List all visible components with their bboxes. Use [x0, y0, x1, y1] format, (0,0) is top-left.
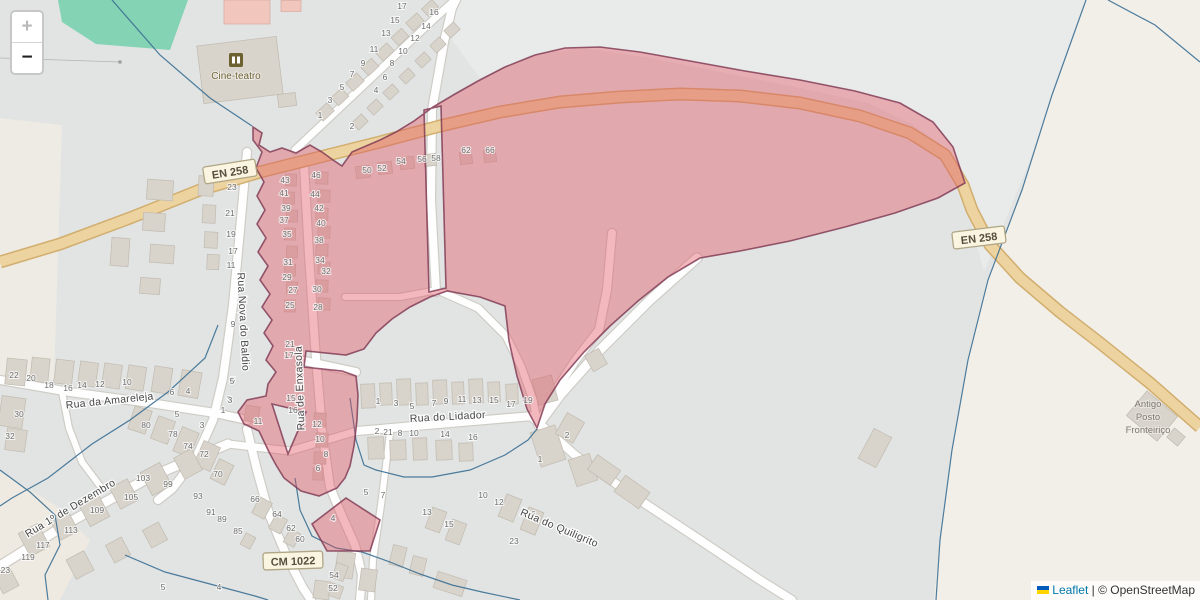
house-number: 78 [168, 429, 178, 439]
cinema-icon [229, 53, 243, 67]
house-number: 13 [472, 395, 482, 405]
house-number: 113 [64, 525, 78, 535]
house-number: 10 [122, 377, 132, 387]
house-number: 14 [440, 429, 450, 439]
house-number: 32 [321, 266, 331, 276]
house-number: 54 [329, 570, 339, 580]
house-number: 2 [565, 430, 570, 440]
house-number: 74 [183, 441, 193, 451]
house-number: 15 [489, 395, 499, 405]
house-number: 6 [383, 72, 388, 82]
house-number: 17 [506, 399, 516, 409]
building [142, 212, 165, 231]
house-number: 8 [324, 449, 329, 459]
house-number: 8 [390, 58, 395, 68]
house-number: 34 [315, 255, 325, 265]
house-number: 123 [0, 565, 10, 575]
house-number: 7 [432, 398, 437, 408]
house-number: 85 [233, 526, 243, 536]
house-number: 37 [279, 215, 289, 225]
zoom-control: + − [10, 10, 44, 75]
house-number: 18 [44, 380, 54, 390]
house-number: 21 [225, 208, 235, 218]
building [54, 359, 75, 385]
building [146, 179, 173, 201]
house-number: 2 [375, 426, 380, 436]
house-number: 9 [361, 58, 366, 68]
building [202, 205, 216, 224]
house-number: 62 [461, 145, 471, 155]
building [224, 0, 270, 24]
house-number: 56 [417, 154, 427, 164]
house-number: 10 [478, 490, 488, 500]
map-canvas[interactable]: 2321191711975314341393735312927252117151… [0, 0, 1200, 600]
building [380, 383, 393, 405]
house-number: 13 [422, 507, 432, 517]
house-number: 9 [444, 396, 449, 406]
house-number: 7 [350, 69, 355, 79]
house-number: 12 [312, 419, 322, 429]
building [361, 384, 376, 408]
house-number: 119 [21, 552, 35, 562]
building [413, 438, 428, 460]
building [390, 440, 407, 461]
house-number: 105 [124, 492, 138, 502]
house-number: 25 [285, 300, 295, 310]
house-number: 4 [374, 85, 379, 95]
house-number: 3 [394, 398, 399, 408]
house-number: 6 [316, 463, 321, 473]
house-number: 43 [280, 175, 290, 185]
house-number: 91 [206, 507, 216, 517]
house-number: 11 [458, 394, 467, 404]
house-number: 62 [286, 523, 296, 533]
house-number: 1 [318, 110, 323, 120]
ukraine-flag-icon [1037, 586, 1049, 594]
house-number: 17 [228, 246, 238, 256]
house-number: 5 [230, 376, 235, 386]
house-number: 14 [421, 21, 431, 31]
house-number: 12 [410, 33, 420, 43]
building [149, 244, 174, 264]
basemap-svg: 2321191711975314341393735312927252117151… [0, 0, 1200, 600]
house-number: 5 [410, 401, 415, 411]
house-number: 70 [213, 469, 223, 479]
house-number: 66 [250, 494, 260, 504]
house-number: 72 [199, 449, 209, 459]
house-number: 5 [161, 582, 166, 592]
house-number: 7 [381, 490, 386, 500]
house-number: 58 [431, 153, 441, 163]
house-number: 42 [314, 203, 324, 213]
border-post-label: Antigo [1135, 399, 1162, 410]
building [459, 443, 474, 461]
house-number: 11 [254, 416, 263, 426]
house-number: 28 [313, 302, 323, 312]
house-number: 109 [90, 505, 104, 515]
house-number: 22 [9, 370, 19, 380]
house-number: 66 [485, 145, 495, 155]
house-number: 52 [328, 583, 338, 593]
house-number: 99 [163, 479, 173, 489]
house-number: 16 [468, 432, 478, 442]
house-number: 27 [288, 285, 298, 295]
house-number: 21 [383, 427, 393, 437]
house-number: 6 [170, 387, 175, 397]
house-number: 3 [200, 420, 205, 430]
house-number: 93 [193, 491, 203, 501]
house-number: 10 [409, 428, 419, 438]
house-number: 41 [279, 188, 289, 198]
path-node [118, 60, 122, 64]
cinema-label: Cine-teatro [211, 71, 261, 82]
building [281, 1, 301, 12]
house-number: 4 [186, 386, 191, 396]
house-number: 10 [315, 434, 325, 444]
house-number: 16 [63, 383, 73, 393]
house-number: 40 [316, 218, 326, 228]
house-number: 12 [95, 379, 105, 389]
house-number: 11 [227, 260, 236, 270]
building [207, 254, 220, 270]
house-number: 23 [509, 536, 519, 546]
house-number: 20 [26, 373, 36, 383]
house-number: 29 [282, 272, 292, 282]
building [359, 568, 378, 592]
house-number: 30 [312, 284, 322, 294]
house-number: 39 [281, 203, 291, 213]
leaflet-link[interactable]: Leaflet [1052, 583, 1088, 597]
house-number: 19 [226, 229, 236, 239]
house-number: 15 [444, 519, 454, 529]
house-number: 4 [217, 582, 222, 592]
building [368, 437, 385, 460]
house-number: 64 [272, 509, 282, 519]
house-number: 35 [282, 229, 292, 239]
house-number: 14 [77, 380, 87, 390]
house-number: 5 [340, 82, 345, 92]
house-number: 10 [398, 46, 408, 56]
house-number: 38 [314, 235, 324, 245]
house-number: 44 [310, 189, 320, 199]
house-number: 80 [141, 420, 151, 430]
attribution-separator: | [1088, 583, 1098, 597]
house-number: 2 [350, 121, 355, 131]
house-number: 13 [381, 28, 391, 38]
house-number: 60 [295, 534, 305, 544]
house-number: 30 [14, 409, 24, 419]
house-number: 17 [397, 1, 407, 11]
house-number: 3 [328, 95, 333, 105]
house-number: 1 [221, 405, 226, 415]
house-number: 89 [217, 514, 227, 524]
house-number: 31 [283, 257, 293, 267]
house-number: 46 [311, 170, 321, 180]
house-number: 5 [364, 487, 369, 497]
building [204, 232, 218, 249]
house-number: 52 [377, 163, 387, 173]
building [277, 92, 296, 107]
building [436, 440, 453, 461]
house-number: 1 [538, 454, 543, 464]
zoom-out-button[interactable]: − [12, 43, 42, 73]
house-number: 3 [228, 395, 233, 405]
house-number: 8 [398, 428, 403, 438]
house-number: 11 [370, 44, 379, 54]
house-number: 16 [429, 7, 439, 17]
house-number: 15 [390, 15, 400, 25]
house-number: 54 [396, 156, 406, 166]
house-number: 5 [175, 409, 180, 419]
house-number: 50 [362, 165, 372, 175]
house-number: 23 [227, 182, 237, 192]
building [197, 36, 283, 103]
house-number: 117 [36, 540, 50, 550]
house-number: 9 [231, 319, 236, 329]
house-number: 4 [331, 513, 336, 523]
zoom-in-button[interactable]: + [12, 12, 42, 43]
house-number: 12 [494, 497, 504, 507]
road-shield-label: CM 1022 [271, 555, 316, 569]
house-number: 32 [5, 431, 15, 441]
building [139, 277, 160, 294]
house-number: 103 [136, 473, 150, 483]
road-shield: CM 1022 [263, 551, 323, 570]
building [110, 237, 130, 266]
house-number: 19 [523, 395, 533, 405]
openstreetmap-link[interactable]: © OpenStreetMap [1098, 583, 1195, 597]
house-number: 1 [376, 396, 381, 406]
border-post-label: Posto [1136, 412, 1160, 423]
building [416, 383, 429, 405]
border-post-label: Fronteiriço [1126, 425, 1171, 436]
attribution-bar: Leaflet | © OpenStreetMap [1031, 581, 1200, 600]
